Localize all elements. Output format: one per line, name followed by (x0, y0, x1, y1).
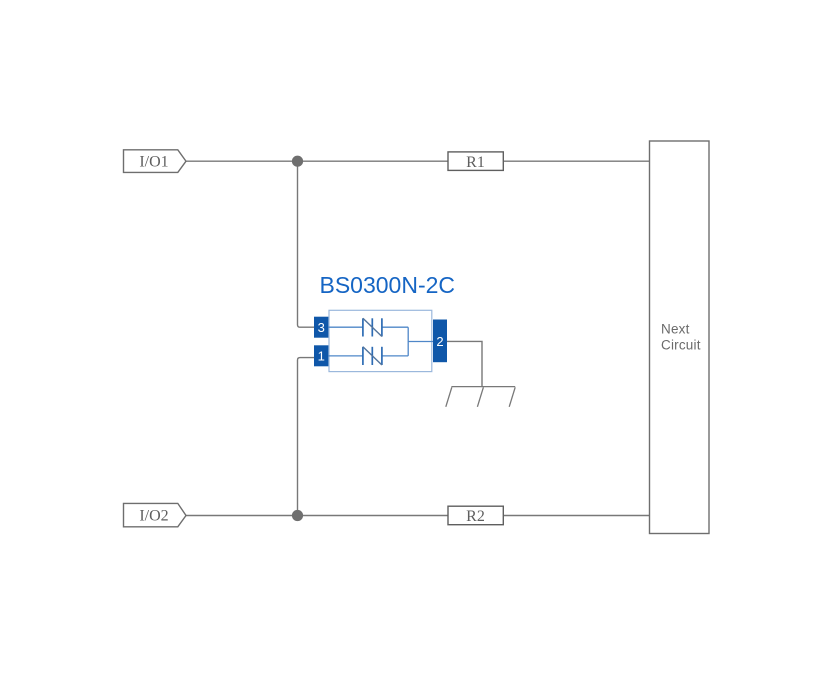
svg-text:3: 3 (318, 320, 325, 335)
svg-text:1: 1 (318, 349, 325, 364)
svg-text:Circuit: Circuit (661, 338, 701, 353)
svg-text:I/O2: I/O2 (139, 508, 168, 525)
svg-text:Next: Next (661, 322, 690, 337)
svg-text:2: 2 (436, 334, 443, 349)
svg-text:R1: R1 (466, 154, 485, 171)
svg-text:BS0300N-2C: BS0300N-2C (320, 272, 456, 298)
svg-text:R2: R2 (466, 508, 485, 525)
svg-text:I/O1: I/O1 (139, 153, 168, 170)
